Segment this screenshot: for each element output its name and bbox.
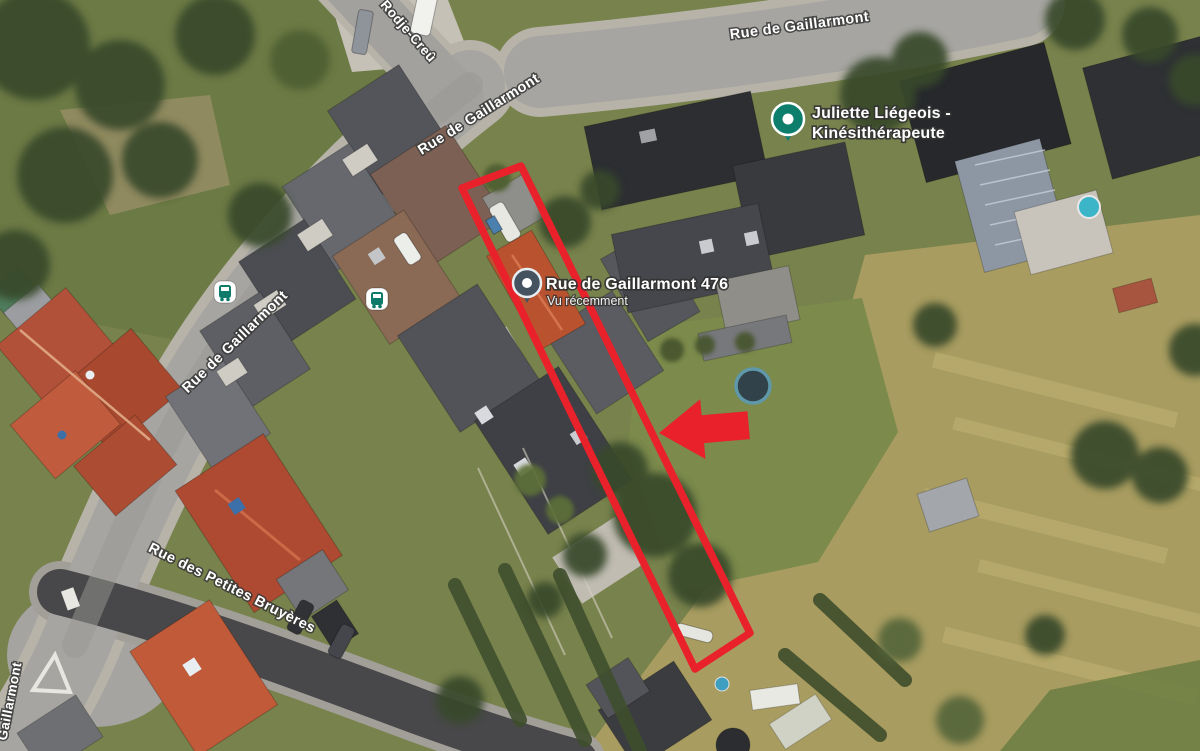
satellite-map-canvas[interactable]: Rue de Gaillarmont Rue de Gaillarmont Ru… — [0, 0, 1200, 751]
bus-stop-icon[interactable] — [214, 281, 236, 303]
trampoline — [736, 369, 770, 403]
map-view: Rue de Gaillarmont Rue de Gaillarmont Ru… — [0, 0, 1200, 751]
poi-label-line1: Juliette Liégeois - — [812, 105, 951, 122]
poi-label-line2: Kinésithérapeute — [812, 125, 945, 142]
bus-stop-icon[interactable] — [366, 288, 388, 310]
address-label-subtitle: Vu récemment — [547, 294, 628, 308]
address-label-title: Rue de Gaillarmont 476 — [546, 276, 728, 293]
